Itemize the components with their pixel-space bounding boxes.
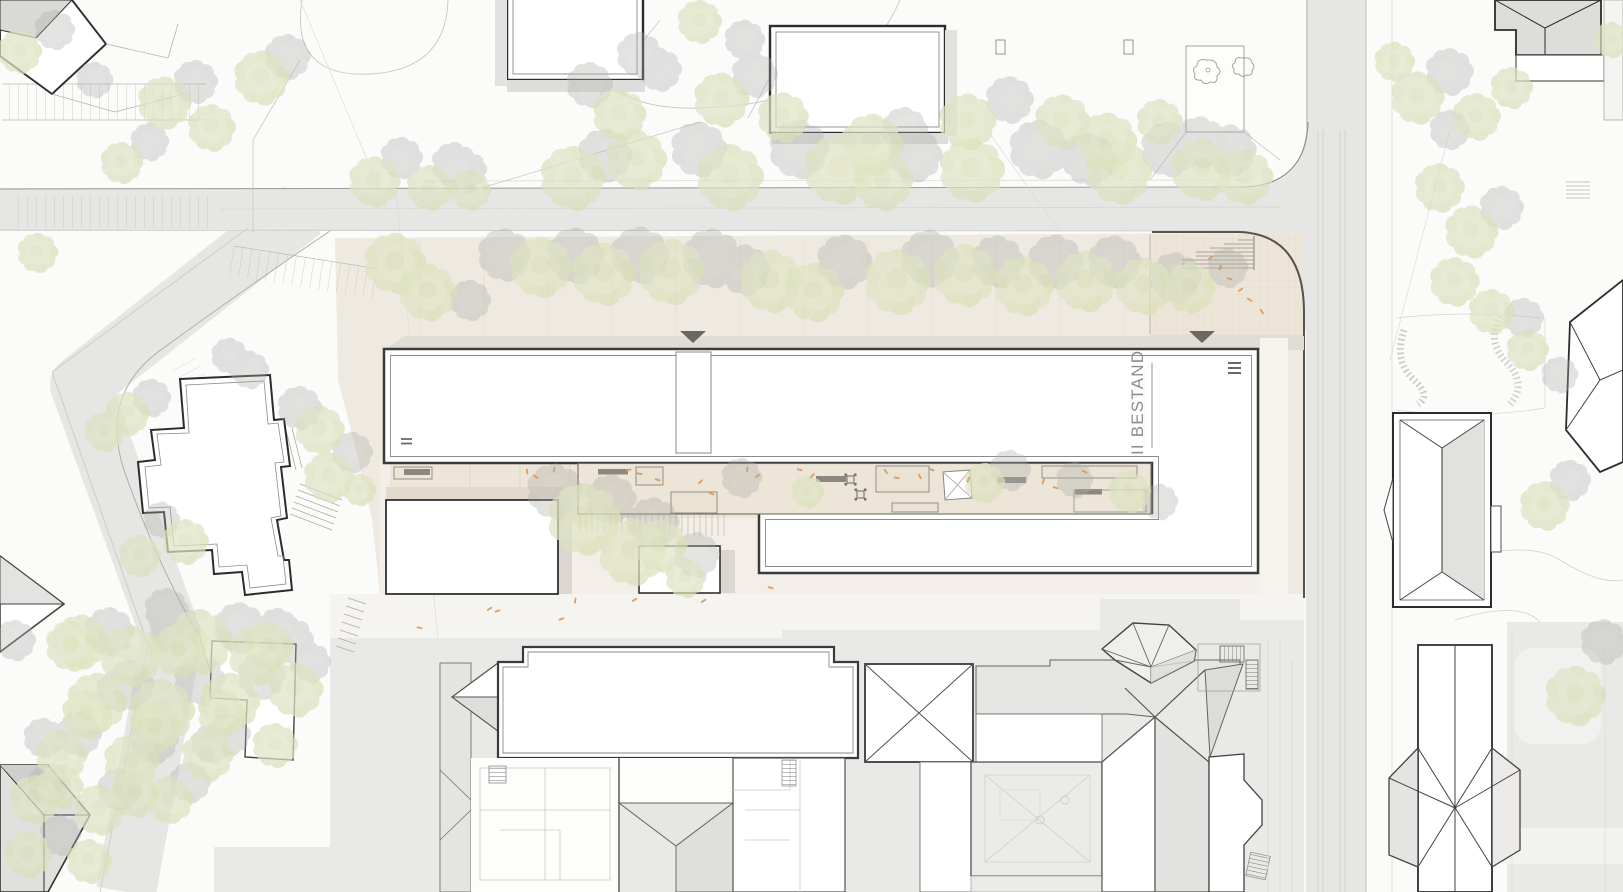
svg-text:II BESTAND: II BESTAND xyxy=(1128,350,1147,455)
